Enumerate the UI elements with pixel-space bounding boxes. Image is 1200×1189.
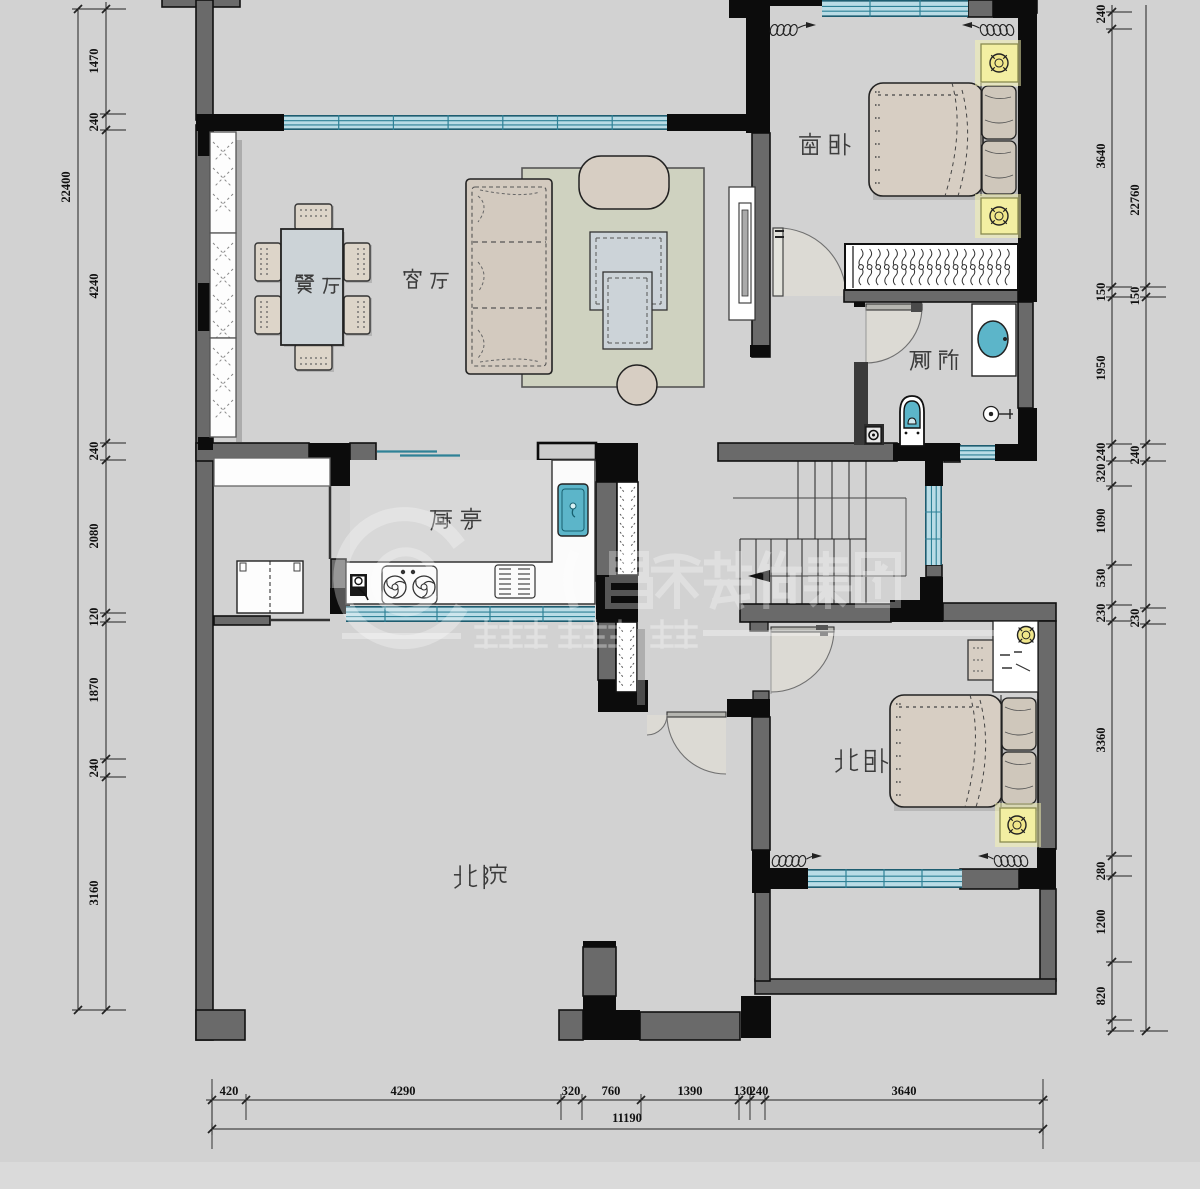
svg-text:22400: 22400 xyxy=(59,171,73,202)
svg-text:530: 530 xyxy=(1094,569,1108,588)
svg-text:760: 760 xyxy=(602,1084,621,1098)
svg-text:240: 240 xyxy=(1094,443,1108,462)
svg-text:1950: 1950 xyxy=(1094,356,1108,381)
svg-text:11190: 11190 xyxy=(612,1111,642,1125)
svg-text:3640: 3640 xyxy=(892,1084,917,1098)
svg-text:1870: 1870 xyxy=(87,678,101,703)
svg-text:240: 240 xyxy=(87,759,101,778)
svg-text:230: 230 xyxy=(1094,604,1108,623)
svg-text:4240: 4240 xyxy=(87,274,101,299)
svg-text:4290: 4290 xyxy=(391,1084,416,1098)
svg-text:320: 320 xyxy=(1094,464,1108,483)
svg-text:2080: 2080 xyxy=(87,524,101,549)
svg-text:120: 120 xyxy=(87,608,101,627)
svg-text:820: 820 xyxy=(1094,987,1108,1006)
svg-text:240: 240 xyxy=(87,442,101,461)
svg-text:420: 420 xyxy=(220,1084,239,1098)
svg-text:22760: 22760 xyxy=(1128,184,1142,215)
svg-text:150: 150 xyxy=(1094,283,1108,302)
svg-text:3160: 3160 xyxy=(87,881,101,906)
svg-text:150: 150 xyxy=(1128,287,1142,306)
svg-text:1090: 1090 xyxy=(1094,509,1108,534)
svg-text:3640: 3640 xyxy=(1094,144,1108,169)
svg-text:320: 320 xyxy=(562,1084,581,1098)
svg-text:240: 240 xyxy=(750,1084,769,1098)
svg-text:1470: 1470 xyxy=(87,49,101,74)
svg-text:240: 240 xyxy=(1128,446,1142,465)
svg-text:1200: 1200 xyxy=(1094,910,1108,935)
svg-text:240: 240 xyxy=(87,113,101,132)
svg-text:230: 230 xyxy=(1128,609,1142,628)
svg-text:1390: 1390 xyxy=(678,1084,703,1098)
svg-text:240: 240 xyxy=(1094,5,1108,24)
svg-text:3360: 3360 xyxy=(1094,728,1108,753)
svg-text:280: 280 xyxy=(1094,862,1108,881)
